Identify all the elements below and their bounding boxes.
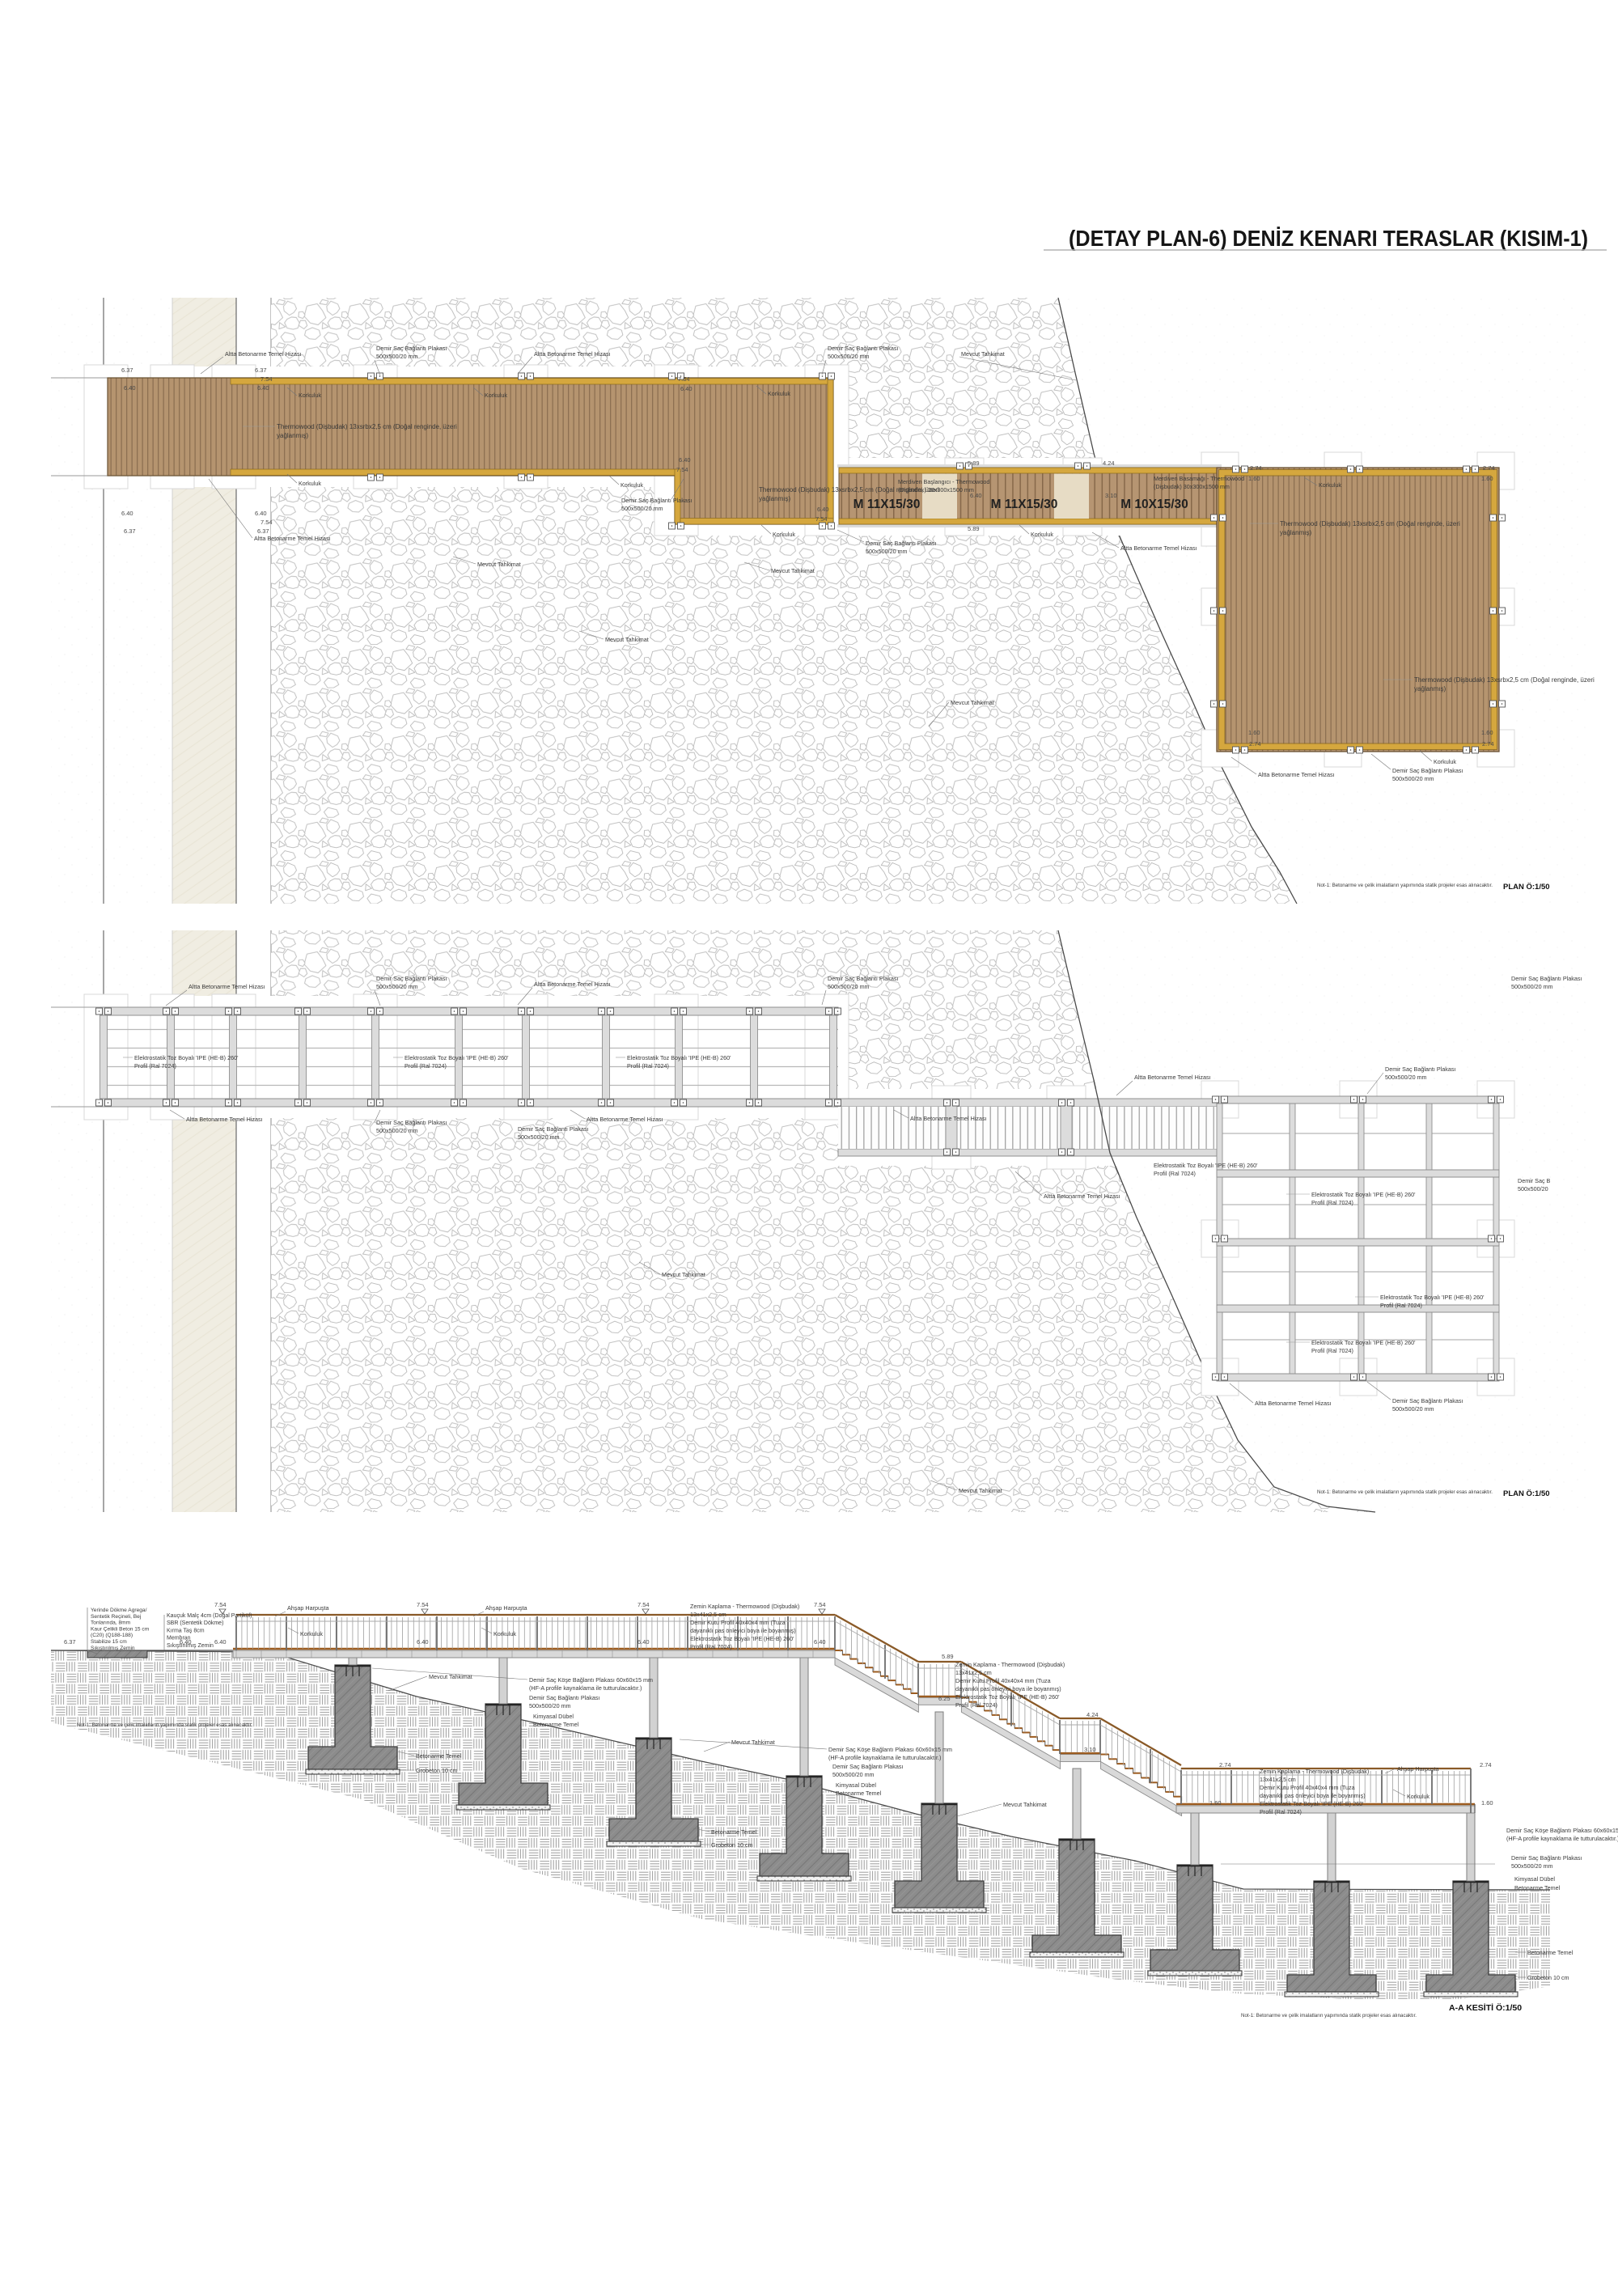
svg-text:Profil (Ral 7024): Profil (Ral 7024) (1154, 1170, 1196, 1177)
svg-text:Grobeton 10 cm: Grobeton 10 cm (1527, 1974, 1569, 1981)
svg-text:6.40: 6.40 (255, 510, 267, 517)
svg-text:Demir Saç Bağlantı Plakası: Demir Saç Bağlantı Plakası (376, 975, 447, 982)
svg-text:Elektrostatik Toz Boyalı 'IPE: Elektrostatik Toz Boyalı 'IPE (HE-B) 260… (1311, 1191, 1416, 1198)
svg-text:Altta Betonarme Temel Hizası: Altta Betonarme Temel Hizası (186, 1116, 263, 1123)
svg-text:Demir Saç Bağlantı Plakası: Demir Saç Bağlantı Plakası (1511, 975, 1582, 982)
svg-text:Profil (Ral 7024): Profil (Ral 7024) (690, 1643, 732, 1650)
svg-text:Betonarme Temel: Betonarme Temel (711, 1828, 757, 1836)
svg-text:6.40: 6.40 (257, 384, 269, 392)
svg-text:Elektrostatik Toz Boyalı 'IPE: Elektrostatik Toz Boyalı 'IPE (HE-B) 260… (690, 1635, 794, 1642)
svg-text:Altta Betonarme Temel Hizası: Altta Betonarme Temel Hizası (1044, 1192, 1120, 1200)
svg-text:Sentetik Reçineli, Bej: Sentetik Reçineli, Bej (91, 1614, 142, 1620)
svg-text:6.40: 6.40 (817, 506, 829, 513)
svg-text:Mevcut Tahkimat: Mevcut Tahkimat (662, 1271, 705, 1278)
svg-text:yağlanmış): yağlanmış) (759, 495, 790, 502)
svg-text:Kimyasal Dübel: Kimyasal Dübel (1514, 1875, 1555, 1883)
svg-text:7.54: 7.54 (260, 375, 273, 383)
svg-text:Kaur Çelikli Beton 15 cm: Kaur Çelikli Beton 15 cm (91, 1626, 150, 1632)
svg-text:Mevcut Tahkimat: Mevcut Tahkimat (951, 699, 994, 706)
svg-text:Altta Betonarme Temel Hizası: Altta Betonarme Temel Hizası (587, 1116, 663, 1123)
svg-text:7.54: 7.54 (814, 1601, 826, 1608)
svg-text:Yerinde Dökme Agrega/: Yerinde Dökme Agrega/ (91, 1608, 147, 1613)
svg-text:PLAN Ö:1/50: PLAN Ö:1/50 (1503, 883, 1550, 892)
svg-text:Demir Saç Bağlantı Plakası: Demir Saç Bağlantı Plakası (518, 1125, 589, 1133)
svg-text:Mevcut Tahkimat: Mevcut Tahkimat (605, 636, 649, 643)
svg-text:Profil (Ral 7024): Profil (Ral 7024) (134, 1062, 176, 1070)
svg-text:Demir Saç Köşe Bağlantı Plakas: Demir Saç Köşe Bağlantı Plakası 60x60x15… (529, 1676, 653, 1684)
svg-text:dayanıklı pas önleyici boya il: dayanıklı pas önleyici boya ile boyanmış… (690, 1627, 796, 1634)
svg-text:(DETAY PLAN-6) DENİZ KENARI TE: (DETAY PLAN-6) DENİZ KENARI TERASLAR (KI… (1069, 226, 1588, 251)
svg-text:Demir Saç Bağlantı Plakası: Demir Saç Bağlantı Plakası (1385, 1065, 1456, 1073)
svg-text:Demir Kutu Profil 40x40x4 mm (: Demir Kutu Profil 40x40x4 mm (Tuza (955, 1677, 1051, 1684)
svg-text:Not-1: Betonarme ve çelik imal: Not-1: Betonarme ve çelik imalatların ya… (1241, 2013, 1417, 2019)
svg-text:Mevcut Tahkimat: Mevcut Tahkimat (961, 350, 1005, 358)
svg-text:5.89: 5.89 (968, 460, 980, 467)
svg-text:A-A KESİTİ Ö:1/50: A-A KESİTİ Ö:1/50 (1449, 2002, 1522, 2013)
svg-text:(HF-A profile kaynaklama ile t: (HF-A profile kaynaklama ile tutturulaca… (1506, 1835, 1618, 1842)
svg-text:Kimyasal Dübel: Kimyasal Dübel (533, 1713, 574, 1720)
svg-text:Profil (Ral 7024): Profil (Ral 7024) (1311, 1347, 1353, 1354)
svg-text:Demir Saç Bağlantı Plakası: Demir Saç Bağlantı Plakası (1511, 1854, 1582, 1862)
svg-text:13x41x2,5 cm: 13x41x2,5 cm (690, 1611, 726, 1618)
svg-text:Altta Betonarme Temel Hizası: Altta Betonarme Temel Hizası (188, 983, 265, 990)
svg-text:Demir Saç Bağlantı Plakası: Demir Saç Bağlantı Plakası (828, 345, 899, 352)
svg-text:Korkuluk: Korkuluk (1031, 531, 1053, 538)
svg-text:Altta Betonarme Temel Hizası: Altta Betonarme Temel Hizası (1134, 1074, 1211, 1081)
svg-text:Elektrostatik Toz Boyalı 'IPE: Elektrostatik Toz Boyalı 'IPE (HE-B) 260… (1154, 1162, 1258, 1169)
svg-text:Altta Betonarme Temel Hizası: Altta Betonarme Temel Hizası (534, 981, 611, 988)
svg-text:Korkuluk: Korkuluk (300, 1630, 323, 1637)
svg-text:Elektrostatik Toz Boyalı 'IPE: Elektrostatik Toz Boyalı 'IPE (HE-B) 260… (1380, 1294, 1485, 1301)
svg-text:Elektrostatik Toz Boyalı 'IPE: Elektrostatik Toz Boyalı 'IPE (HE-B) 260… (404, 1054, 509, 1061)
svg-text:1.60: 1.60 (1481, 1799, 1493, 1807)
svg-text:4.24: 4.24 (1086, 1711, 1099, 1718)
svg-text:Korkuluk: Korkuluk (299, 392, 321, 399)
svg-text:Betonarme Temel: Betonarme Temel (1514, 1884, 1561, 1891)
svg-text:Grobeton 10 cm: Grobeton 10 cm (416, 1767, 458, 1774)
svg-text:Betonarme Temel: Betonarme Temel (533, 1721, 579, 1728)
svg-text:Demir Saç Bağlantı Plakası: Demir Saç Bağlantı Plakası (1392, 767, 1463, 774)
svg-text:2.74: 2.74 (1483, 464, 1495, 472)
svg-text:6.40: 6.40 (680, 385, 693, 392)
svg-text:1.60: 1.60 (1481, 475, 1493, 482)
svg-text:6.37: 6.37 (121, 366, 133, 374)
svg-text:(Dişbudak) 30x300x1500 mm: (Dişbudak) 30x300x1500 mm (898, 486, 974, 494)
svg-text:Not-1: Betonarme ve çelik imal: Not-1: Betonarme ve çelik imalatların ya… (1317, 883, 1493, 888)
svg-text:Demir Saç Bağlantı Plakası: Demir Saç Bağlantı Plakası (376, 345, 447, 352)
svg-text:500x500/20: 500x500/20 (1518, 1185, 1548, 1192)
svg-text:Demir Saç Bağlantı Plakası: Demir Saç Bağlantı Plakası (621, 497, 693, 504)
svg-text:13x41x2,5 cm: 13x41x2,5 cm (1260, 1776, 1296, 1783)
svg-text:Kauçuk Malç 4cm (Doğal Partikü: Kauçuk Malç 4cm (Doğal Partikül) (167, 1613, 252, 1619)
svg-text:6.37: 6.37 (255, 366, 267, 374)
svg-text:7.54: 7.54 (260, 519, 273, 526)
svg-text:(HF-A profile kaynaklama ile t: (HF-A profile kaynaklama ile tutturulaca… (828, 1754, 941, 1761)
svg-text:Elektrostatik Toz Boyalı 'IPE: Elektrostatik Toz Boyalı 'IPE (HE-B) 260… (955, 1693, 1060, 1701)
svg-text:Profil (Ral 7024): Profil (Ral 7024) (1260, 1808, 1302, 1815)
svg-text:Demir Saç Bağlantı Plakası: Demir Saç Bağlantı Plakası (529, 1694, 600, 1701)
svg-text:dayanıklı pas önleyici boya il: dayanıklı pas önleyici boya ile boyanmış… (955, 1685, 1061, 1692)
svg-text:Kimyasal Dübel: Kimyasal Dübel (836, 1781, 876, 1789)
svg-text:Merdiven Basamağı - Thermowood: Merdiven Basamağı - Thermowood (1154, 475, 1244, 482)
svg-text:Korkuluk: Korkuluk (485, 392, 507, 399)
svg-text:13x41x2,5 cm: 13x41x2,5 cm (955, 1669, 992, 1676)
svg-text:dayanıklı pas önleyici boya il: dayanıklı pas önleyici boya ile boyanmış… (1260, 1792, 1366, 1799)
svg-text:Demir Saç Köşe Bağlantı Plakas: Demir Saç Köşe Bağlantı Plakası 60x60x15… (828, 1746, 952, 1753)
svg-text:Mevcut Tahkimat: Mevcut Tahkimat (959, 1487, 1002, 1494)
svg-text:1.60: 1.60 (1248, 475, 1260, 482)
svg-text:M 11X15/30: M 11X15/30 (991, 498, 1058, 511)
svg-text:Altta Betonarme Temel Hizası: Altta Betonarme Temel Hizası (225, 350, 302, 358)
svg-text:Korkuluk: Korkuluk (773, 531, 795, 538)
svg-text:Kırma Taş 8cm: Kırma Taş 8cm (167, 1628, 205, 1633)
svg-text:Mevcut Tahkimat: Mevcut Tahkimat (1003, 1801, 1047, 1808)
svg-text:Altta Betonarme Temel Hizası: Altta Betonarme Temel Hizası (254, 535, 331, 542)
svg-text:500x500/20 mm: 500x500/20 mm (1511, 983, 1553, 990)
svg-text:500x500/20 mm: 500x500/20 mm (518, 1133, 560, 1141)
svg-text:6.37: 6.37 (257, 527, 269, 535)
svg-text:yağlanmış): yağlanmış) (277, 432, 308, 439)
svg-text:6.40: 6.40 (637, 1638, 650, 1646)
svg-text:3.10: 3.10 (1084, 1746, 1096, 1753)
svg-text:Tonlarında, 8mm: Tonlarında, 8mm (91, 1620, 131, 1626)
svg-text:6.37: 6.37 (124, 527, 136, 535)
svg-text:6.40: 6.40 (214, 1638, 227, 1646)
svg-text:Demir Saç Bağlantı Plakası: Demir Saç Bağlantı Plakası (828, 975, 899, 982)
svg-text:500x500/20 mm: 500x500/20 mm (1511, 1862, 1553, 1870)
svg-text:2.74: 2.74 (1482, 740, 1494, 748)
svg-text:6.40: 6.40 (124, 384, 136, 392)
svg-text:Demir Saç B: Demir Saç B (1518, 1177, 1551, 1184)
svg-text:3.10: 3.10 (1105, 492, 1117, 499)
svg-text:Ahşap Harpuşta: Ahşap Harpuşta (485, 1604, 527, 1612)
svg-text:Korkuluk: Korkuluk (1407, 1793, 1430, 1800)
svg-text:6.40: 6.40 (121, 510, 133, 517)
svg-text:(Dişbudak) 30x300x1500 mm: (Dişbudak) 30x300x1500 mm (1154, 483, 1230, 490)
svg-text:Mevcut Tahkimat: Mevcut Tahkimat (731, 1739, 775, 1746)
svg-text:500x500/20 mm: 500x500/20 mm (828, 353, 870, 360)
svg-text:500x500/20 mm: 500x500/20 mm (376, 353, 418, 360)
svg-text:Sıkıştırılmış Zemin: Sıkıştırılmış Zemin (91, 1646, 135, 1651)
svg-text:Zemin Kaplama - Thermowood (Di: Zemin Kaplama - Thermowood (Dişbudak) (1260, 1768, 1369, 1775)
svg-text:500x500/20 mm: 500x500/20 mm (828, 983, 870, 990)
svg-text:Membran: Membran (167, 1636, 191, 1642)
svg-text:yağlanmış): yağlanmış) (1414, 685, 1446, 693)
svg-text:Mevcut Tahkimat: Mevcut Tahkimat (771, 567, 815, 574)
svg-text:5.89: 5.89 (968, 525, 980, 532)
svg-text:6.40: 6.40 (814, 1638, 826, 1646)
svg-text:SBR (Sentetik Dökme): SBR (Sentetik Dökme) (167, 1620, 223, 1626)
svg-text:Elektrostatik Toz Boyalı 'IPE: Elektrostatik Toz Boyalı 'IPE (HE-B) 260… (1311, 1339, 1416, 1346)
svg-text:Ahşap Harpuşta: Ahşap Harpuşta (1397, 1765, 1439, 1773)
svg-text:1.60: 1.60 (1209, 1799, 1222, 1807)
svg-text:Ahşap Harpuşta: Ahşap Harpuşta (287, 1604, 329, 1612)
svg-text:2.74: 2.74 (1219, 1761, 1231, 1769)
svg-text:(C20) (Q188-188): (C20) (Q188-188) (91, 1633, 133, 1638)
svg-text:6.25: 6.25 (938, 1695, 951, 1702)
svg-text:Korkuluk: Korkuluk (299, 480, 321, 487)
svg-text:Sıkıştırılmış Zemin: Sıkıştırılmış Zemin (167, 1643, 214, 1649)
svg-text:Zemin Kaplama - Thermowood (Di: Zemin Kaplama - Thermowood (Dişbudak) (690, 1603, 799, 1610)
svg-text:Altta Betonarme Temel Hizası: Altta Betonarme Temel Hizası (910, 1115, 987, 1122)
svg-text:500x500/20 mm: 500x500/20 mm (1392, 775, 1434, 782)
svg-text:Demir Saç Bağlantı Plakası: Demir Saç Bağlantı Plakası (866, 540, 937, 547)
svg-text:2.74: 2.74 (1480, 1761, 1492, 1769)
svg-text:Korkuluk: Korkuluk (768, 390, 790, 397)
svg-text:Not-1: Betonarme ve çelik imal: Not-1: Betonarme ve çelik imalatların ya… (1317, 1489, 1493, 1495)
svg-text:500x500/20 mm: 500x500/20 mm (529, 1702, 571, 1709)
svg-text:Mevcut Tahkimat: Mevcut Tahkimat (477, 561, 521, 568)
svg-text:Elektrostatik Toz Boyalı 'IPE: Elektrostatik Toz Boyalı 'IPE (HE-B) 260… (134, 1054, 239, 1061)
svg-text:500x500/20 mm: 500x500/20 mm (866, 548, 908, 555)
svg-text:2.74: 2.74 (1249, 740, 1261, 748)
svg-text:Demir Saç Bağlantı Plakası: Demir Saç Bağlantı Plakası (832, 1763, 904, 1770)
svg-text:Merdiven Başlangıcı - Thermowo: Merdiven Başlangıcı - Thermowood (898, 478, 989, 485)
svg-text:PLAN Ö:1/50: PLAN Ö:1/50 (1503, 1489, 1550, 1498)
svg-text:7.54: 7.54 (815, 515, 828, 523)
svg-text:Elektrostatik Toz Boyalı 'IPE: Elektrostatik Toz Boyalı 'IPE (HE-B) 260… (627, 1054, 731, 1061)
svg-text:7.54: 7.54 (676, 466, 688, 473)
svg-text:Thermowood (Dişbudak) 13xsrbx2: Thermowood (Dişbudak) 13xsrbx2,5 cm (Doğ… (277, 423, 457, 430)
svg-text:Stabilize 15 cm: Stabilize 15 cm (91, 1639, 127, 1645)
svg-text:Altta Betonarme Temel Hizası: Altta Betonarme Temel Hizası (1120, 544, 1197, 552)
svg-text:Profil (Ral 7024): Profil (Ral 7024) (1380, 1302, 1422, 1309)
svg-text:Altta Betonarme Temel Hizası: Altta Betonarme Temel Hizası (1258, 771, 1335, 778)
svg-text:6.40: 6.40 (679, 456, 691, 464)
svg-text:Profil (Ral 7024): Profil (Ral 7024) (404, 1062, 447, 1070)
svg-text:Zemin Kaplama - Thermowood (Di: Zemin Kaplama - Thermowood (Dişbudak) (955, 1661, 1065, 1668)
svg-text:Demir Kutu Profil 40x40x4 mm (: Demir Kutu Profil 40x40x4 mm (Tuza (1260, 1784, 1355, 1791)
svg-text:Betonarme Temel: Betonarme Temel (416, 1752, 462, 1760)
svg-text:500x500/20 mm: 500x500/20 mm (1385, 1074, 1427, 1081)
svg-text:Betonarme Temel: Betonarme Temel (1527, 1949, 1574, 1956)
svg-text:7.54: 7.54 (214, 1601, 227, 1608)
svg-text:Altta Betonarme Temel Hizası: Altta Betonarme Temel Hizası (1255, 1400, 1332, 1407)
svg-text:Grobeton 10 cm: Grobeton 10 cm (711, 1841, 753, 1849)
svg-text:Demir Saç Bağlantı Plakası: Demir Saç Bağlantı Plakası (1392, 1397, 1463, 1404)
svg-text:Korkuluk: Korkuluk (1434, 758, 1456, 765)
svg-text:Profil (Ral 7024): Profil (Ral 7024) (1311, 1199, 1353, 1206)
svg-text:Demir Saç Bağlantı Plakası: Demir Saç Bağlantı Plakası (376, 1119, 447, 1126)
svg-text:Demir Kutu Profil 40x40x4 mm (: Demir Kutu Profil 40x40x4 mm (Tuza (690, 1619, 786, 1626)
svg-text:500x500/20 mm: 500x500/20 mm (621, 505, 663, 512)
svg-text:Not-1: Betonarme ve çelik imal: Not-1: Betonarme ve çelik imalatların ya… (77, 1722, 252, 1728)
svg-text:Korkuluk: Korkuluk (493, 1630, 516, 1637)
svg-text:Elektrostatik Toz Boyalı 'IPE: Elektrostatik Toz Boyalı 'IPE (HE-B) 260… (1260, 1800, 1364, 1807)
svg-text:7.54: 7.54 (678, 375, 690, 383)
svg-text:1.60: 1.60 (1481, 729, 1493, 736)
svg-text:Korkuluk: Korkuluk (621, 481, 643, 489)
svg-text:M 11X15/30: M 11X15/30 (853, 498, 921, 511)
svg-text:Profil (Ral 7024): Profil (Ral 7024) (955, 1701, 997, 1709)
svg-text:Demir Saç Köşe Bağlantı Plakas: Demir Saç Köşe Bağlantı Plakası 60x60x15… (1506, 1827, 1618, 1834)
svg-text:Thermowood (Dişbudak) 13xsrbx2: Thermowood (Dişbudak) 13xsrbx2,5 cm (Doğ… (1280, 520, 1460, 527)
svg-text:1.60: 1.60 (1248, 729, 1260, 736)
svg-text:Profil (Ral 7024): Profil (Ral 7024) (627, 1062, 669, 1070)
svg-text:Thermowood (Dişbudak) 13xsrbx2: Thermowood (Dişbudak) 13xsrbx2,5 cm (Doğ… (1414, 676, 1595, 684)
svg-text:4.24: 4.24 (1103, 460, 1115, 467)
svg-text:500x500/20 mm: 500x500/20 mm (376, 983, 418, 990)
svg-text:500x500/20 mm: 500x500/20 mm (376, 1127, 418, 1134)
svg-text:2.74: 2.74 (1250, 464, 1262, 472)
svg-text:(HF-A profile kaynaklama ile t: (HF-A profile kaynaklama ile tutturulaca… (529, 1684, 642, 1692)
svg-text:7.54: 7.54 (637, 1601, 650, 1608)
svg-text:6.37: 6.37 (64, 1638, 76, 1646)
svg-text:Korkuluk: Korkuluk (1319, 481, 1341, 489)
svg-text:Betonarme Temel: Betonarme Temel (836, 1790, 882, 1797)
svg-text:7.54: 7.54 (417, 1601, 429, 1608)
svg-text:500x500/20 mm: 500x500/20 mm (1392, 1405, 1434, 1413)
svg-text:Altta Betonarme Temel Hizası: Altta Betonarme Temel Hizası (534, 350, 611, 358)
svg-text:yağlanmış): yağlanmış) (1280, 529, 1311, 536)
svg-text:500x500/20 mm: 500x500/20 mm (832, 1771, 875, 1778)
svg-text:5.89: 5.89 (942, 1653, 954, 1660)
svg-text:6.40: 6.40 (417, 1638, 429, 1646)
svg-text:M 10X15/30: M 10X15/30 (1120, 498, 1188, 511)
